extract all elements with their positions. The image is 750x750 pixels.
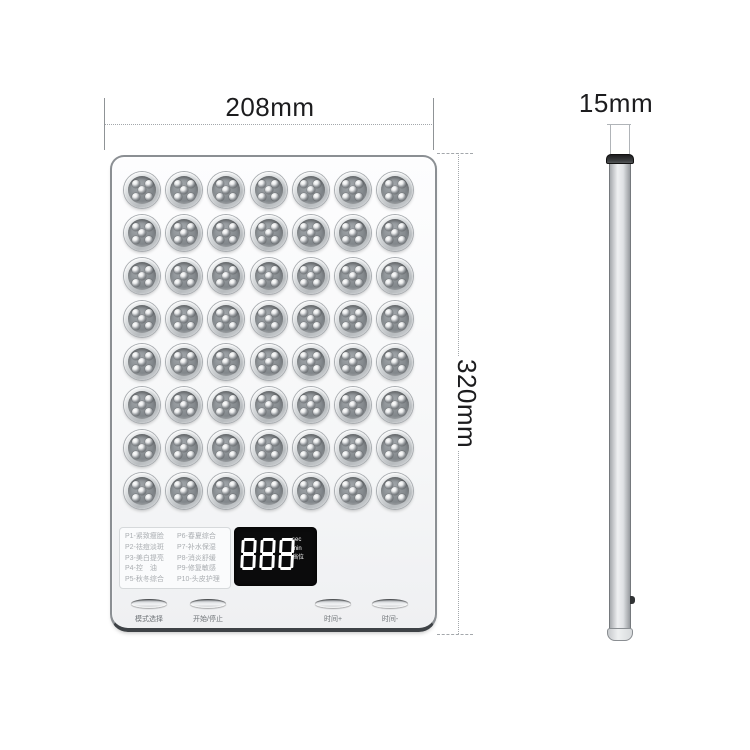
led-diode-icon (391, 186, 399, 194)
led-module (377, 387, 413, 423)
mode-list-column-2: P6-春夏综合P7-补水保湿P8-消炎舒缓P9-修复敏感P10-头皮护理 (177, 532, 225, 584)
led-diode-icon (229, 451, 237, 459)
device-front-panel: P1-紧致瘦脸P2-祛痘淡斑P3-美白提亮P4-控 油P5-秋冬综合 P6-春夏… (110, 155, 437, 632)
led-module-lens (170, 176, 198, 204)
list-entry: P7-补水保湿 (177, 543, 225, 554)
led-module-lens (170, 219, 198, 247)
led-diode-icon (187, 236, 195, 244)
led-diode-icon (138, 444, 146, 452)
led-module-lens (128, 176, 156, 204)
led-diode-icon (300, 322, 308, 330)
led-diode-icon (313, 279, 321, 287)
led-diode-icon (342, 180, 350, 188)
led-diode-icon (398, 322, 406, 330)
led-module-lens (170, 348, 198, 376)
list-entry: sec (292, 536, 314, 545)
led-diode-icon (229, 266, 237, 274)
led-module (208, 301, 244, 337)
led-diode-icon (138, 229, 146, 237)
led-diode-icon (145, 309, 153, 317)
led-diode-icon (385, 481, 393, 489)
list-entry: P6-春夏综合 (177, 532, 225, 543)
led-diode-icon (145, 365, 153, 373)
led-diode-icon (216, 223, 224, 231)
led-diode-icon (391, 401, 399, 409)
thickness-dimension-ext-left (610, 124, 611, 155)
led-diode-icon (229, 395, 237, 403)
led-module (377, 172, 413, 208)
led-diode-icon (180, 358, 188, 366)
led-module (166, 430, 202, 466)
list-entry: P9-修复敏感 (177, 564, 225, 575)
led-diode-icon (145, 395, 153, 403)
led-diode-icon (398, 266, 406, 274)
led-module (124, 473, 160, 509)
led-module-lens (297, 391, 325, 419)
led-module-lens (297, 477, 325, 505)
led-module (124, 344, 160, 380)
led-diode-icon (300, 451, 308, 459)
led-module (208, 258, 244, 294)
led-diode-icon (398, 236, 406, 244)
time-minus-button (372, 599, 408, 608)
led-diode-icon (132, 438, 140, 446)
led-diode-icon (342, 223, 350, 231)
list-entry: P1-紧致瘦脸 (125, 532, 173, 543)
led-module-lens (255, 391, 283, 419)
led-diode-icon (258, 494, 266, 502)
led-diode-icon (216, 322, 224, 330)
led-module-lens (128, 434, 156, 462)
led-module-lens (381, 477, 409, 505)
mode-list-column-1: P1-紧致瘦脸P2-祛痘淡斑P3-美白提亮P4-控 油P5-秋冬综合 (125, 532, 173, 584)
led-diode-icon (300, 266, 308, 274)
led-module-lens (170, 391, 198, 419)
led-module (208, 473, 244, 509)
led-module-lens (381, 391, 409, 419)
led-diode-icon (385, 352, 393, 360)
led-diode-icon (222, 358, 230, 366)
led-diode-icon (216, 236, 224, 244)
led-diode-icon (355, 279, 363, 287)
led-module-lens (381, 219, 409, 247)
time-plus-button (315, 599, 351, 608)
segment (253, 540, 257, 553)
led-display: secmin档位 (234, 527, 317, 586)
led-module (293, 344, 329, 380)
led-diode-icon (174, 451, 182, 459)
led-module-lens (381, 434, 409, 462)
led-diode-icon (174, 236, 182, 244)
led-diode-icon (187, 408, 195, 416)
led-diode-icon (145, 180, 153, 188)
led-diode-icon (132, 180, 140, 188)
led-diode-icon (313, 322, 321, 330)
led-diode-icon (398, 395, 406, 403)
led-diode-icon (229, 494, 237, 502)
led-diode-icon (132, 494, 140, 502)
led-diode-icon (398, 494, 406, 502)
led-diode-icon (355, 236, 363, 244)
led-diode-icon (258, 322, 266, 330)
led-diode-icon (313, 266, 321, 274)
led-diode-icon (391, 229, 399, 237)
led-diode-icon (385, 322, 393, 330)
led-diode-icon (132, 451, 140, 459)
led-diode-icon (398, 352, 406, 360)
led-module (124, 215, 160, 251)
led-module (166, 301, 202, 337)
led-diode-icon (174, 494, 182, 502)
led-diode-icon (342, 236, 350, 244)
led-diode-icon (174, 322, 182, 330)
led-diode-icon (187, 279, 195, 287)
led-diode-icon (342, 352, 350, 360)
led-module (251, 430, 287, 466)
led-diode-icon (385, 438, 393, 446)
led-diode-icon (271, 494, 279, 502)
led-diode-icon (138, 315, 146, 323)
seven-segment-digit (259, 538, 276, 570)
led-diode-icon (307, 444, 315, 452)
led-diode-icon (258, 180, 266, 188)
led-diode-icon (271, 438, 279, 446)
led-diode-icon (187, 481, 195, 489)
led-diode-icon (180, 186, 188, 194)
led-module (208, 215, 244, 251)
led-diode-icon (145, 438, 153, 446)
led-diode-icon (355, 494, 363, 502)
segment (280, 567, 291, 570)
led-module-lens (339, 305, 367, 333)
led-module (335, 172, 371, 208)
led-module-lens (339, 434, 367, 462)
height-dimension-ext-top (437, 153, 473, 154)
mode-select-button (131, 599, 167, 608)
led-module-lens (255, 219, 283, 247)
led-module-lens (170, 477, 198, 505)
led-diode-icon (271, 309, 279, 317)
led-diode-icon (300, 279, 308, 287)
led-diode-icon (355, 395, 363, 403)
led-diode-icon (300, 309, 308, 317)
height-dimension-ext-bottom (437, 634, 473, 635)
led-diode-icon (216, 365, 224, 373)
led-diode-icon (132, 481, 140, 489)
display-unit-labels: secmin档位 (292, 536, 314, 563)
led-diode-icon (229, 438, 237, 446)
led-diode-icon (271, 279, 279, 287)
led-module (293, 473, 329, 509)
led-diode-icon (222, 272, 230, 280)
list-entry: P10-头皮护理 (177, 575, 225, 586)
led-diode-icon (187, 438, 195, 446)
led-module-lens (381, 176, 409, 204)
start-stop-button-label: 开始/停止 (178, 614, 238, 624)
led-module-lens (128, 391, 156, 419)
led-diode-icon (313, 352, 321, 360)
led-diode-icon (132, 322, 140, 330)
led-diode-icon (174, 266, 182, 274)
led-diode-icon (145, 193, 153, 201)
led-diode-icon (385, 236, 393, 244)
led-diode-icon (355, 322, 363, 330)
led-module (208, 430, 244, 466)
led-diode-icon (313, 438, 321, 446)
led-module-lens (297, 262, 325, 290)
led-diode-icon (258, 193, 266, 201)
led-diode-icon (300, 180, 308, 188)
led-diode-icon (342, 451, 350, 459)
led-diode-icon (385, 279, 393, 287)
product-dimension-diagram: 208mm 320mm P1-紧致瘦脸P2-祛痘淡斑P3-美白提亮P4-控 油P… (0, 0, 750, 750)
led-diode-icon (187, 451, 195, 459)
led-diode-icon (391, 358, 399, 366)
led-diode-icon (342, 395, 350, 403)
led-diode-icon (271, 408, 279, 416)
led-diode-icon (187, 322, 195, 330)
display-digits (240, 538, 295, 570)
led-diode-icon (187, 352, 195, 360)
led-diode-icon (271, 266, 279, 274)
led-diode-icon (385, 395, 393, 403)
led-diode-icon (180, 401, 188, 409)
led-diode-icon (222, 444, 230, 452)
led-module (166, 387, 202, 423)
led-module (166, 172, 202, 208)
led-diode-icon (300, 494, 308, 502)
led-diode-icon (385, 180, 393, 188)
led-diode-icon (313, 451, 321, 459)
led-diode-icon (271, 365, 279, 373)
led-diode-icon (187, 395, 195, 403)
led-module-lens (255, 176, 283, 204)
led-module (293, 430, 329, 466)
led-module (293, 215, 329, 251)
led-diode-icon (385, 494, 393, 502)
led-module (335, 473, 371, 509)
led-diode-icon (258, 438, 266, 446)
led-diode-icon (258, 266, 266, 274)
led-diode-icon (265, 487, 273, 495)
led-diode-icon (145, 322, 153, 330)
mode-list-box: P1-紧致瘦脸P2-祛痘淡斑P3-美白提亮P4-控 油P5-秋冬综合 P6-春夏… (119, 527, 231, 589)
led-diode-icon (313, 494, 321, 502)
led-diode-icon (187, 223, 195, 231)
led-module (377, 473, 413, 509)
led-module-lens (297, 348, 325, 376)
led-module (293, 387, 329, 423)
led-diode-icon (300, 395, 308, 403)
led-module (251, 473, 287, 509)
width-dimension-tick-right (433, 98, 434, 150)
side-profile-button-knob (630, 596, 635, 604)
led-diode-icon (271, 352, 279, 360)
led-module-lens (212, 176, 240, 204)
led-module (124, 301, 160, 337)
led-module (251, 215, 287, 251)
led-diode-icon (145, 279, 153, 287)
led-module (335, 258, 371, 294)
led-diode-icon (229, 279, 237, 287)
mode-select-button-label: 模式选择 (119, 614, 179, 624)
led-diode-icon (132, 236, 140, 244)
led-diode-icon (307, 487, 315, 495)
led-module (124, 258, 160, 294)
segment (260, 540, 264, 553)
led-diode-icon (271, 481, 279, 489)
led-diode-icon (174, 309, 182, 317)
led-diode-icon (229, 309, 237, 317)
led-module (251, 387, 287, 423)
led-module-lens (339, 391, 367, 419)
device-side-profile (609, 156, 631, 630)
led-module (251, 258, 287, 294)
led-diode-icon (265, 358, 273, 366)
led-diode-icon (180, 315, 188, 323)
led-diode-icon (174, 481, 182, 489)
height-dimension-label: 320mm (451, 357, 482, 450)
led-diode-icon (398, 309, 406, 317)
led-diode-icon (398, 481, 406, 489)
led-diode-icon (216, 309, 224, 317)
led-module-lens (381, 262, 409, 290)
led-diode-icon (313, 408, 321, 416)
led-diode-icon (132, 266, 140, 274)
led-diode-icon (398, 365, 406, 373)
led-module (251, 172, 287, 208)
led-module-lens (297, 176, 325, 204)
led-diode-icon (313, 481, 321, 489)
led-module (166, 473, 202, 509)
led-diode-icon (391, 444, 399, 452)
led-diode-icon (313, 395, 321, 403)
led-diode-icon (355, 223, 363, 231)
led-module-lens (381, 348, 409, 376)
led-module-lens (297, 434, 325, 462)
led-diode-icon (132, 279, 140, 287)
led-diode-icon (342, 438, 350, 446)
led-diode-icon (342, 266, 350, 274)
led-module (377, 344, 413, 380)
time-plus-button-label: 时间+ (303, 614, 363, 624)
led-diode-icon (258, 481, 266, 489)
led-diode-icon (258, 236, 266, 244)
led-diode-icon (187, 266, 195, 274)
led-diode-icon (300, 438, 308, 446)
segment (243, 552, 254, 555)
led-diode-icon (229, 180, 237, 188)
led-module-lens (339, 477, 367, 505)
led-diode-icon (145, 223, 153, 231)
led-diode-icon (138, 358, 146, 366)
led-diode-icon (258, 395, 266, 403)
led-diode-icon (355, 408, 363, 416)
led-diode-icon (355, 193, 363, 201)
led-diode-icon (187, 309, 195, 317)
led-diode-icon (229, 365, 237, 373)
led-diode-icon (300, 365, 308, 373)
led-diode-icon (174, 352, 182, 360)
led-diode-icon (385, 193, 393, 201)
segment (272, 540, 276, 553)
led-diode-icon (307, 401, 315, 409)
led-diode-icon (216, 481, 224, 489)
led-module (377, 215, 413, 251)
led-diode-icon (391, 272, 399, 280)
led-diode-icon (307, 186, 315, 194)
led-module-lens (339, 176, 367, 204)
list-entry: min (292, 545, 314, 554)
led-diode-icon (216, 279, 224, 287)
led-diode-icon (300, 193, 308, 201)
segment (281, 552, 292, 555)
led-module-lens (212, 262, 240, 290)
thickness-dimension-ext-right (629, 124, 630, 155)
led-module (124, 430, 160, 466)
led-module-lens (170, 434, 198, 462)
led-diode-icon (132, 352, 140, 360)
led-diode-icon (174, 180, 182, 188)
led-diode-icon (313, 223, 321, 231)
led-diode-icon (187, 365, 195, 373)
led-diode-icon (385, 365, 393, 373)
led-diode-icon (216, 352, 224, 360)
led-diode-icon (132, 223, 140, 231)
led-diode-icon (216, 266, 224, 274)
led-diode-icon (355, 352, 363, 360)
led-diode-icon (271, 180, 279, 188)
led-module (293, 172, 329, 208)
led-module-lens (212, 305, 240, 333)
led-diode-icon (342, 408, 350, 416)
led-module (166, 215, 202, 251)
led-diode-icon (265, 229, 273, 237)
led-diode-icon (216, 451, 224, 459)
led-diode-icon (216, 395, 224, 403)
led-diode-icon (222, 229, 230, 237)
width-dimension-label: 208mm (200, 92, 340, 123)
led-module-lens (128, 305, 156, 333)
led-module-lens (212, 348, 240, 376)
led-diode-icon (271, 236, 279, 244)
led-diode-icon (229, 236, 237, 244)
led-module (293, 301, 329, 337)
led-diode-icon (398, 279, 406, 287)
led-diode-icon (187, 494, 195, 502)
led-module (377, 301, 413, 337)
led-diode-icon (342, 365, 350, 373)
side-profile-top-cap (606, 154, 634, 164)
led-diode-icon (174, 193, 182, 201)
led-diode-icon (342, 494, 350, 502)
led-diode-icon (138, 272, 146, 280)
led-diode-icon (258, 223, 266, 231)
led-diode-icon (145, 451, 153, 459)
led-module (293, 258, 329, 294)
led-module (124, 387, 160, 423)
led-diode-icon (229, 481, 237, 489)
led-diode-icon (132, 193, 140, 201)
led-module-lens (381, 305, 409, 333)
led-module-lens (255, 262, 283, 290)
led-diode-icon (216, 180, 224, 188)
led-module (377, 430, 413, 466)
led-diode-icon (271, 395, 279, 403)
led-diode-icon (300, 236, 308, 244)
led-diode-icon (216, 193, 224, 201)
led-diode-icon (229, 352, 237, 360)
